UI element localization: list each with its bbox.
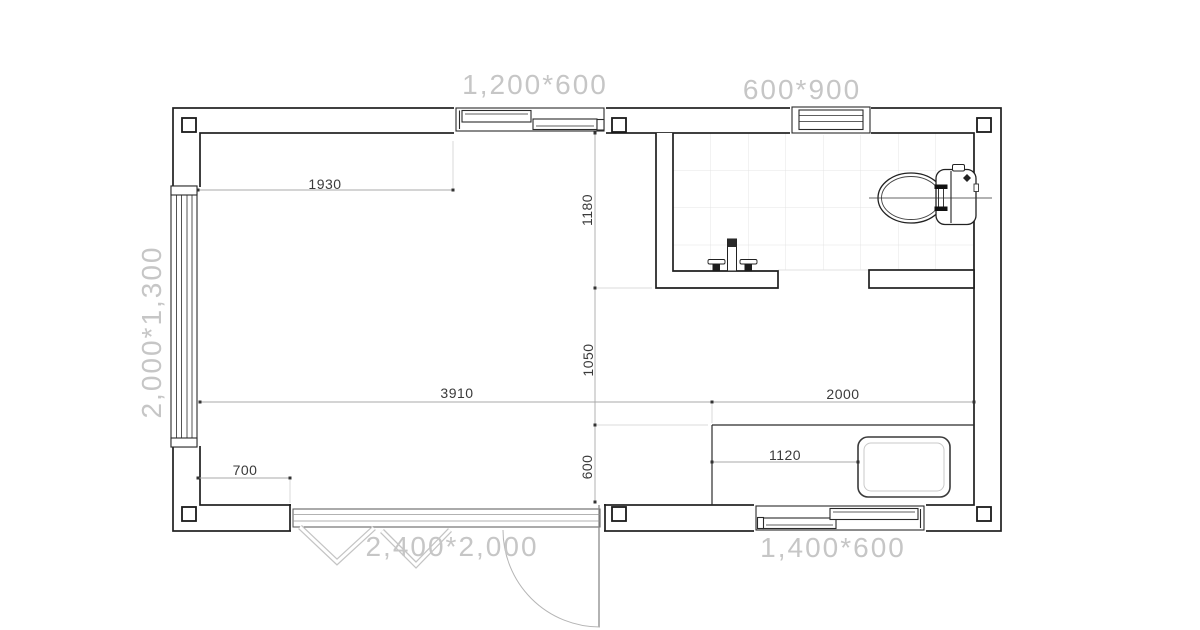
dim-1050: 1050 — [580, 343, 596, 376]
dim-1930: 1930 — [308, 176, 341, 192]
label-bottom-window-size: 1,400*600 — [760, 532, 906, 564]
label-entry-door-size: 2,400*2,000 — [365, 531, 538, 563]
dim-1120: 1120 — [769, 447, 801, 463]
dim-700: 700 — [233, 462, 258, 478]
left-window-icon — [171, 186, 197, 447]
dim-1180: 1180 — [579, 194, 595, 226]
sliding-track-icon — [293, 509, 600, 527]
counter-area — [712, 425, 974, 505]
dim-3910: 3910 — [440, 385, 473, 401]
floor-plan-canvas: 1,200*600 600*900 2,000*1,300 2,400*2,00… — [0, 0, 1200, 630]
label-left-window-size: 2,000*1,300 — [136, 245, 168, 418]
dim-600: 600 — [579, 455, 595, 480]
bottom-sliding-window-icon — [756, 506, 924, 530]
label-top-window-size: 1,200*600 — [462, 69, 608, 101]
dim-2000: 2000 — [826, 386, 859, 402]
top-sliding-window-icon — [456, 108, 604, 131]
label-bath-window-size: 600*900 — [743, 74, 861, 106]
entry-door — [293, 505, 600, 627]
basin-icon — [858, 437, 950, 497]
bath-window-icon — [792, 107, 870, 133]
